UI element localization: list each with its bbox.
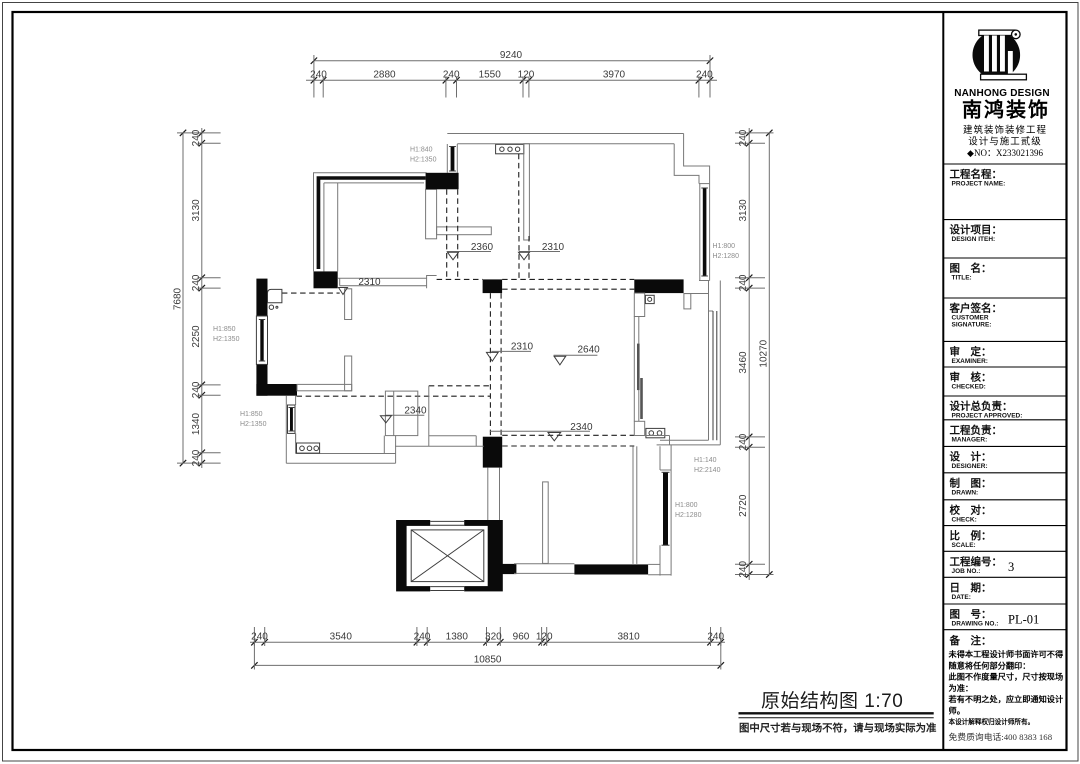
svg-text:免费质询电话:400 8383 168: 免费质询电话:400 8383 168 bbox=[949, 731, 1053, 742]
svg-text:3: 3 bbox=[1008, 560, 1014, 574]
svg-text:2340: 2340 bbox=[404, 406, 427, 417]
svg-text:240: 240 bbox=[696, 70, 713, 81]
svg-text:TITLE:: TITLE: bbox=[952, 275, 972, 282]
svg-text:PROJECT APPROVED:: PROJECT APPROVED: bbox=[952, 413, 1023, 420]
svg-text:原始结构图 1:70: 原始结构图 1:70 bbox=[761, 690, 903, 712]
svg-text:南鸿装饰: 南鸿装饰 bbox=[962, 98, 1050, 122]
svg-text:2310: 2310 bbox=[542, 242, 565, 253]
svg-text:日 期：: 日 期： bbox=[950, 581, 992, 594]
svg-text:240: 240 bbox=[191, 449, 202, 466]
svg-text:此图不作度量尺寸，尺寸按现场: 此图不作度量尺寸，尺寸按现场 bbox=[949, 672, 1064, 682]
svg-text:2310: 2310 bbox=[358, 277, 381, 288]
svg-text:若有不明之处，应立即通知设计: 若有不明之处，应立即通知设计 bbox=[948, 694, 1064, 704]
svg-text:NANHONG DESIGN: NANHONG DESIGN bbox=[954, 88, 1050, 99]
svg-text:240: 240 bbox=[191, 129, 202, 146]
svg-text:9240: 9240 bbox=[500, 50, 523, 61]
svg-text:10270: 10270 bbox=[758, 339, 769, 367]
svg-text:2250: 2250 bbox=[191, 325, 202, 348]
svg-text:比 例：: 比 例： bbox=[950, 529, 992, 542]
svg-text:H1:800: H1:800 bbox=[713, 243, 736, 250]
svg-text:3130: 3130 bbox=[738, 199, 749, 222]
svg-text:1550: 1550 bbox=[479, 70, 502, 81]
svg-text:CUSTOMER: CUSTOMER bbox=[952, 315, 989, 322]
svg-text:DESIGN ITEH:: DESIGN ITEH: bbox=[952, 236, 996, 243]
svg-text:图 名：: 图 名： bbox=[950, 262, 992, 275]
svg-text:图 号：: 图 号： bbox=[950, 609, 992, 621]
svg-text:DATE:: DATE: bbox=[952, 594, 971, 601]
svg-text:960: 960 bbox=[513, 631, 530, 642]
svg-text:设计与施工贰级: 设计与施工贰级 bbox=[968, 136, 1042, 148]
svg-text:审 定：: 审 定： bbox=[950, 345, 992, 358]
svg-text:7680: 7680 bbox=[172, 287, 183, 310]
svg-text:240: 240 bbox=[738, 433, 749, 450]
svg-text:2310: 2310 bbox=[511, 341, 534, 352]
svg-text:3970: 3970 bbox=[603, 70, 626, 81]
svg-text:随意将任何部分翻印：: 随意将任何部分翻印： bbox=[949, 660, 1031, 670]
svg-text:240: 240 bbox=[191, 381, 202, 398]
svg-text:设 计：: 设 计： bbox=[950, 450, 992, 463]
svg-text:3130: 3130 bbox=[191, 199, 202, 222]
svg-text:审 核：: 审 核： bbox=[950, 371, 992, 384]
svg-text:120: 120 bbox=[518, 70, 535, 81]
svg-text:3460: 3460 bbox=[738, 351, 749, 374]
svg-text:240: 240 bbox=[738, 129, 749, 146]
svg-text:建筑装饰装修工程: 建筑装饰装修工程 bbox=[963, 124, 1047, 136]
svg-text:H2:1280: H2:1280 bbox=[713, 253, 740, 260]
svg-text:工程名程：: 工程名程： bbox=[950, 168, 1003, 181]
svg-text:客户签名：: 客户签名： bbox=[949, 302, 1003, 315]
svg-text:PL-01: PL-01 bbox=[1008, 613, 1039, 627]
svg-text:H2:1280: H2:1280 bbox=[675, 512, 702, 519]
svg-text:EXAMINER:: EXAMINER: bbox=[952, 358, 988, 365]
svg-text:制 图：: 制 图： bbox=[950, 476, 992, 489]
svg-text:10850: 10850 bbox=[474, 655, 502, 666]
svg-text:◆NO：X233021396: ◆NO：X233021396 bbox=[967, 148, 1043, 158]
svg-text:设计项目：: 设计项目： bbox=[950, 223, 1003, 236]
svg-text:师。: 师。 bbox=[949, 706, 965, 716]
svg-text:240: 240 bbox=[738, 561, 749, 578]
svg-text:3540: 3540 bbox=[330, 631, 353, 642]
svg-text:校 对：: 校 对： bbox=[950, 503, 992, 516]
svg-text:为准：: 为准： bbox=[949, 683, 974, 693]
svg-text:工程编号：: 工程编号： bbox=[950, 555, 1003, 568]
svg-text:H1:850: H1:850 bbox=[240, 411, 263, 418]
svg-text:SCALE:: SCALE: bbox=[952, 542, 976, 549]
svg-text:2640: 2640 bbox=[577, 344, 600, 355]
svg-text:工程负责：: 工程负责： bbox=[950, 423, 1003, 436]
svg-text:CHECK:: CHECK: bbox=[952, 516, 977, 523]
svg-text:240: 240 bbox=[443, 70, 460, 81]
svg-text:H1:800: H1:800 bbox=[675, 502, 698, 509]
svg-text:PROJECT NAME:: PROJECT NAME: bbox=[952, 181, 1006, 188]
svg-text:1380: 1380 bbox=[446, 631, 469, 642]
svg-text:2720: 2720 bbox=[738, 494, 749, 517]
svg-text:未得本工程设计师书面许可不得: 未得本工程设计师书面许可不得 bbox=[948, 649, 1064, 659]
svg-text:240: 240 bbox=[310, 70, 327, 81]
svg-text:3810: 3810 bbox=[617, 631, 640, 642]
svg-text:H2:1350: H2:1350 bbox=[410, 157, 437, 164]
svg-text:H2:1350: H2:1350 bbox=[240, 421, 267, 428]
svg-text:CHECKED:: CHECKED: bbox=[952, 384, 986, 391]
svg-text:240: 240 bbox=[414, 631, 431, 642]
svg-text:图中尺寸若与现场不符，请与现场实际为准: 图中尺寸若与现场不符，请与现场实际为准 bbox=[739, 722, 937, 735]
svg-text:DRAWN:: DRAWN: bbox=[952, 489, 979, 496]
svg-text:MANAGER:: MANAGER: bbox=[952, 436, 988, 443]
svg-text:1340: 1340 bbox=[191, 412, 202, 435]
svg-text:2340: 2340 bbox=[570, 422, 593, 433]
svg-text:H1:840: H1:840 bbox=[410, 147, 433, 154]
svg-text:320: 320 bbox=[485, 631, 502, 642]
svg-text:SIGNATURE:: SIGNATURE: bbox=[952, 322, 992, 329]
svg-text:H1:140: H1:140 bbox=[694, 457, 717, 464]
svg-text:2360: 2360 bbox=[471, 242, 494, 253]
svg-text:JOB NO.:: JOB NO.: bbox=[952, 568, 981, 575]
svg-text:DESIGNER:: DESIGNER: bbox=[952, 463, 988, 470]
svg-text:2880: 2880 bbox=[373, 70, 396, 81]
svg-text:240: 240 bbox=[738, 274, 749, 291]
svg-text:H1:850: H1:850 bbox=[213, 326, 236, 333]
svg-text:120: 120 bbox=[536, 631, 553, 642]
svg-text:设计总负责：: 设计总负责： bbox=[950, 400, 1013, 413]
svg-text:240: 240 bbox=[251, 631, 268, 642]
svg-text:H2:1350: H2:1350 bbox=[213, 336, 240, 343]
svg-text:本设计解释权归设计师所有。: 本设计解释权归设计师所有。 bbox=[948, 717, 1035, 726]
svg-text:240: 240 bbox=[191, 274, 202, 291]
svg-text:240: 240 bbox=[707, 631, 724, 642]
svg-text:备 注：: 备 注： bbox=[949, 634, 992, 647]
svg-text:DRAWING NO.:: DRAWING NO.: bbox=[952, 621, 999, 628]
svg-text:H2:2140: H2:2140 bbox=[694, 467, 721, 474]
